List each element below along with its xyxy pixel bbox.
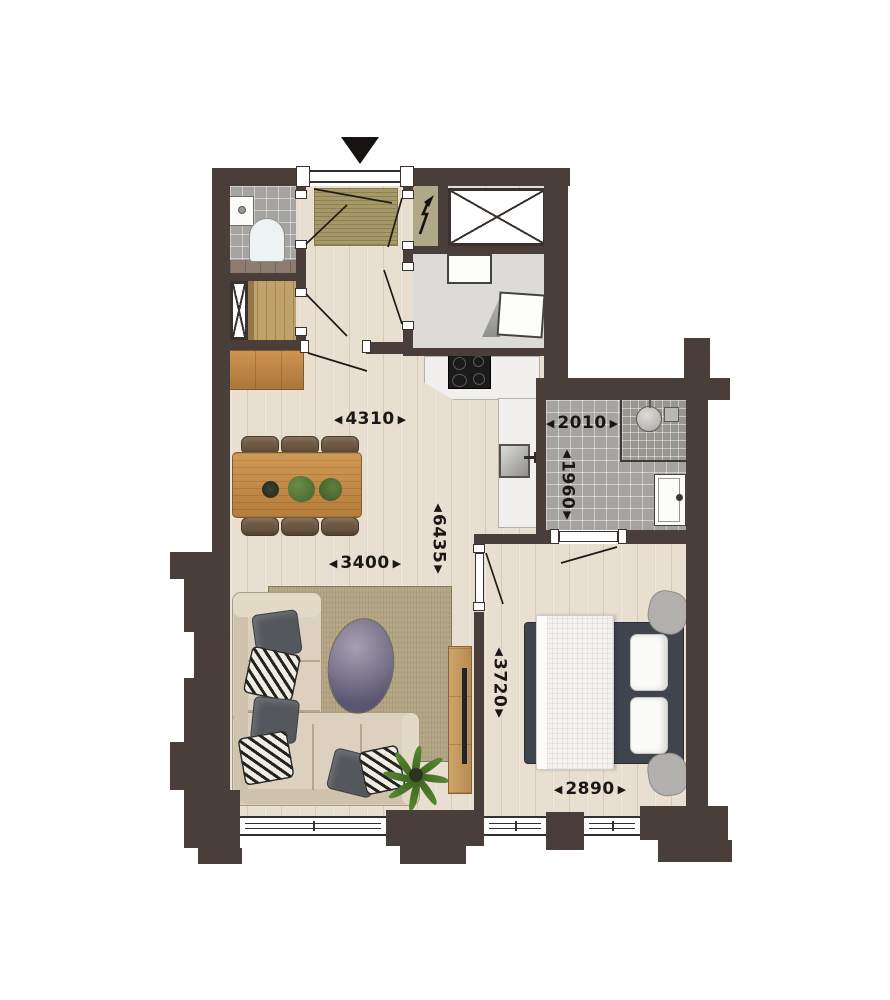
dim-value: 4310	[345, 409, 394, 429]
bedroom-door-leaf	[475, 553, 484, 603]
bed-duvet	[536, 615, 614, 770]
arrow-right-icon: ▶	[610, 418, 618, 429]
dim-bedroom-depth: ▲ 3720 ▼	[475, 646, 523, 719]
table-plant	[262, 481, 279, 498]
door-jamb	[402, 262, 414, 271]
wall-right	[686, 400, 708, 818]
wall-wc	[296, 244, 306, 293]
floor-plan: ◀ 4310 ▶ ◀ 3400 ▶ ▲ 6435 ▼ ◀ 2010 ▶ ▲ 19…	[0, 0, 890, 1000]
tv	[462, 668, 467, 764]
dim-living-inner-width: ◀ 3400 ▶	[329, 553, 401, 573]
door-jamb	[295, 190, 307, 199]
entrance-jamb	[296, 166, 310, 187]
window-bedroom	[484, 816, 546, 836]
dim-living-width: ◀ 4310 ▶	[334, 409, 406, 429]
wall-bath-top	[536, 378, 730, 400]
sofa-seam	[312, 724, 314, 790]
wall-corner-bl	[184, 790, 240, 848]
dining-chair	[281, 517, 319, 536]
door-jamb	[618, 529, 627, 544]
wall-shaft-bottom	[403, 246, 548, 254]
wall-upper-right	[544, 168, 568, 392]
entrance-arrow-icon	[341, 137, 379, 164]
dim-bathroom-depth: ▲ 1960 ▼	[543, 448, 591, 521]
wall-hall-stub	[366, 342, 413, 354]
wall-closet-bottom	[228, 340, 306, 350]
window-bedroom	[584, 816, 640, 836]
burner-icon	[453, 357, 466, 370]
door-jamb	[402, 190, 414, 199]
arrow-up-icon: ▲	[434, 502, 442, 513]
wc-sink-faucet-icon	[238, 206, 246, 214]
floor-plant	[384, 740, 448, 812]
door-jamb	[295, 288, 307, 297]
bed-sheet-fold	[537, 616, 547, 769]
dim-bathroom-width: ◀ 2010 ▶	[546, 413, 618, 433]
arrow-left-icon: ◀	[546, 418, 554, 429]
arrow-down-icon: ▼	[563, 510, 571, 521]
arrow-down-icon: ▼	[495, 708, 503, 719]
dim-value: 1960	[559, 460, 576, 508]
dim-apartment-length: ▲ 6435 ▼	[414, 502, 462, 575]
wall-left-pier	[170, 552, 230, 579]
cooktop	[448, 352, 491, 389]
arrow-up-icon: ▲	[563, 448, 571, 459]
arrow-up-icon: ▲	[495, 646, 503, 657]
dining-chair	[321, 517, 359, 536]
wall-left	[212, 186, 230, 552]
dim-value: 3720	[491, 658, 508, 706]
wall-corner-bl	[198, 848, 242, 864]
arrow-right-icon: ▶	[393, 558, 401, 569]
kitchen-sink	[499, 444, 530, 478]
bathroom-door-leaf	[559, 531, 618, 542]
door-jamb	[402, 241, 414, 250]
door-jamb	[473, 544, 485, 553]
door-jamb	[550, 529, 559, 544]
plant-pot	[409, 768, 423, 782]
wall-pillar-bottom	[386, 810, 484, 846]
door-jamb	[295, 240, 307, 249]
door-jamb	[473, 602, 485, 611]
door-jamb	[300, 340, 309, 353]
wall-pillar-bottom	[400, 846, 466, 864]
wall-left	[184, 678, 230, 742]
arrow-left-icon: ◀	[329, 558, 337, 569]
doormat	[314, 188, 398, 246]
arrow-right-icon: ▶	[618, 784, 626, 795]
door-jamb	[402, 321, 414, 330]
arrow-left-icon: ◀	[334, 414, 342, 425]
dryer	[497, 291, 546, 338]
wall-left	[184, 579, 230, 632]
wall-wc-bottom	[230, 273, 306, 281]
wall-bedroom-connector	[474, 534, 546, 544]
bed-pillow	[630, 697, 668, 754]
closet-floor	[248, 281, 296, 340]
burner-icon	[473, 356, 484, 367]
sofa-pillow	[237, 730, 295, 786]
tv-cabinet	[448, 646, 472, 794]
shower-control-icon	[664, 407, 679, 422]
dim-value: 3400	[340, 553, 389, 573]
wall-corner-br	[640, 806, 728, 840]
wall-pillar-bottom	[546, 812, 584, 850]
shaft-x-icon	[230, 281, 248, 340]
wall-utility-bottom	[403, 348, 548, 356]
sideboard	[228, 350, 304, 390]
wall-pillar-tr	[684, 338, 710, 378]
wall-left	[194, 632, 230, 678]
arrow-right-icon: ▶	[398, 414, 406, 425]
wc-tile-band	[230, 260, 296, 274]
arrow-left-icon: ◀	[554, 784, 562, 795]
entrance-threshold	[300, 170, 400, 183]
window-living	[240, 816, 386, 836]
burner-icon	[473, 373, 485, 385]
toilet	[249, 218, 285, 262]
dim-value: 6435	[430, 514, 447, 562]
washer	[447, 254, 492, 284]
shower-head-icon	[636, 406, 662, 432]
wall-meter-closet	[438, 186, 448, 246]
table-plant	[319, 478, 342, 501]
sofa-pillow	[243, 645, 302, 702]
entrance-jamb	[400, 166, 414, 187]
dim-bedroom-width: ◀ 2890 ▶	[554, 779, 626, 799]
burner-icon	[452, 374, 467, 387]
wall-corner-br	[658, 840, 732, 862]
arrow-down-icon: ▼	[434, 564, 442, 575]
meter-closet-floor	[413, 186, 438, 246]
table-plant	[288, 476, 315, 502]
door-jamb	[295, 327, 307, 336]
door-jamb	[362, 340, 371, 353]
shaft-x-icon	[448, 188, 546, 246]
dining-chair	[241, 517, 279, 536]
wall-left-pier	[170, 742, 230, 790]
bed-pillow	[630, 634, 668, 691]
dim-value: 2890	[565, 779, 614, 799]
washbasin-faucet-icon	[676, 494, 683, 501]
dim-value: 2010	[557, 413, 606, 433]
